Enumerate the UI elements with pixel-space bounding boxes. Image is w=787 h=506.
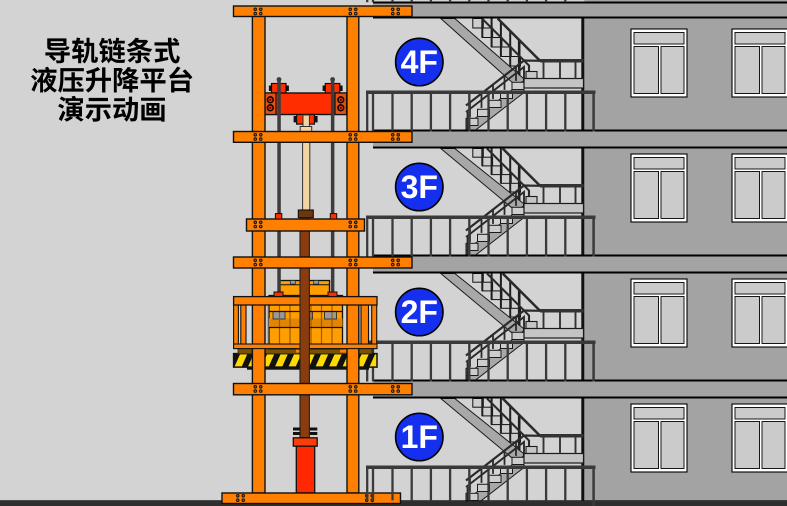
svg-text:2F: 2F bbox=[401, 294, 438, 330]
svg-text:3F: 3F bbox=[401, 169, 438, 205]
svg-text:4F: 4F bbox=[401, 44, 438, 80]
svg-text:1F: 1F bbox=[401, 419, 438, 455]
